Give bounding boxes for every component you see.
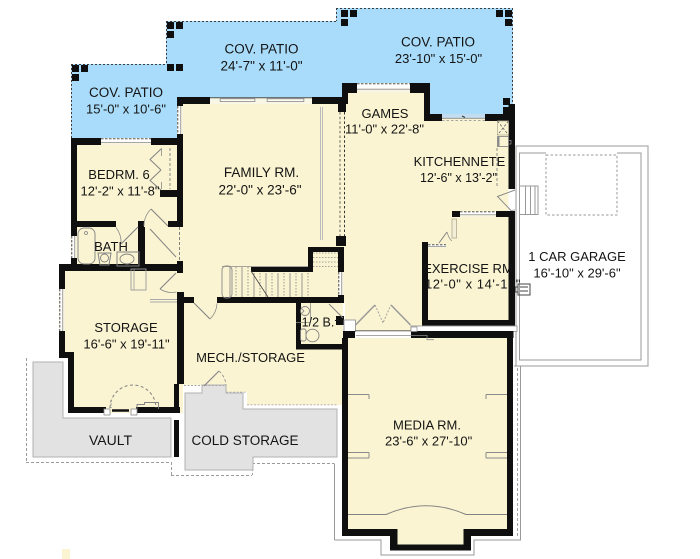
svg-text:EXERCISE RM: EXERCISE RM — [423, 261, 513, 276]
svg-text:23'-10" x 15'-0": 23'-10" x 15'-0" — [395, 51, 483, 66]
svg-text:MECH./STORAGE: MECH./STORAGE — [196, 350, 305, 365]
svg-text:24'-7" x 11'-0": 24'-7" x 11'-0" — [220, 59, 302, 74]
svg-text:16'-6" x 19'-11": 16'-6" x 19'-11" — [83, 337, 170, 352]
svg-text:12'-6" x 13'-2": 12'-6" x 13'-2" — [420, 171, 497, 185]
svg-text:KITCHENNETE: KITCHENNETE — [414, 154, 506, 169]
svg-text:COV. PATIO: COV. PATIO — [89, 85, 163, 100]
svg-text:22'-0" x 23'-6": 22'-0" x 23'-6" — [218, 183, 301, 198]
svg-text:23'-6" x 27'-10": 23'-6" x 27'-10" — [385, 434, 473, 449]
svg-text:12'-2" x 11'-8": 12'-2" x 11'-8" — [81, 184, 160, 199]
svg-text:VAULT: VAULT — [89, 432, 132, 448]
svg-text:COLD STORAGE: COLD STORAGE — [191, 433, 298, 448]
svg-text:COV. PATIO: COV. PATIO — [401, 35, 475, 50]
svg-text:COV. PATIO: COV. PATIO — [224, 42, 298, 57]
svg-text:11'-0" x 22'-8": 11'-0" x 22'-8" — [345, 122, 424, 137]
svg-text:15'-0" x 10'-6": 15'-0" x 10'-6" — [86, 102, 166, 117]
svg-text:1/2 B.: 1/2 B. — [302, 316, 335, 330]
svg-text:GAMES: GAMES — [362, 106, 409, 121]
svg-text:STORAGE: STORAGE — [94, 320, 158, 335]
svg-text:1 CAR GARAGE: 1 CAR GARAGE — [528, 249, 626, 264]
svg-text:BEDRM. 6: BEDRM. 6 — [88, 167, 149, 182]
svg-text:FAMILY RM.: FAMILY RM. — [224, 165, 299, 180]
svg-text:16'-10" x 29'-6": 16'-10" x 29'-6" — [533, 266, 621, 281]
svg-text:BATH: BATH — [94, 239, 128, 254]
svg-text:12'-0" x 14'-10": 12'-0" x 14'-10" — [425, 277, 521, 292]
svg-text:MEDIA RM.: MEDIA RM. — [393, 418, 461, 433]
